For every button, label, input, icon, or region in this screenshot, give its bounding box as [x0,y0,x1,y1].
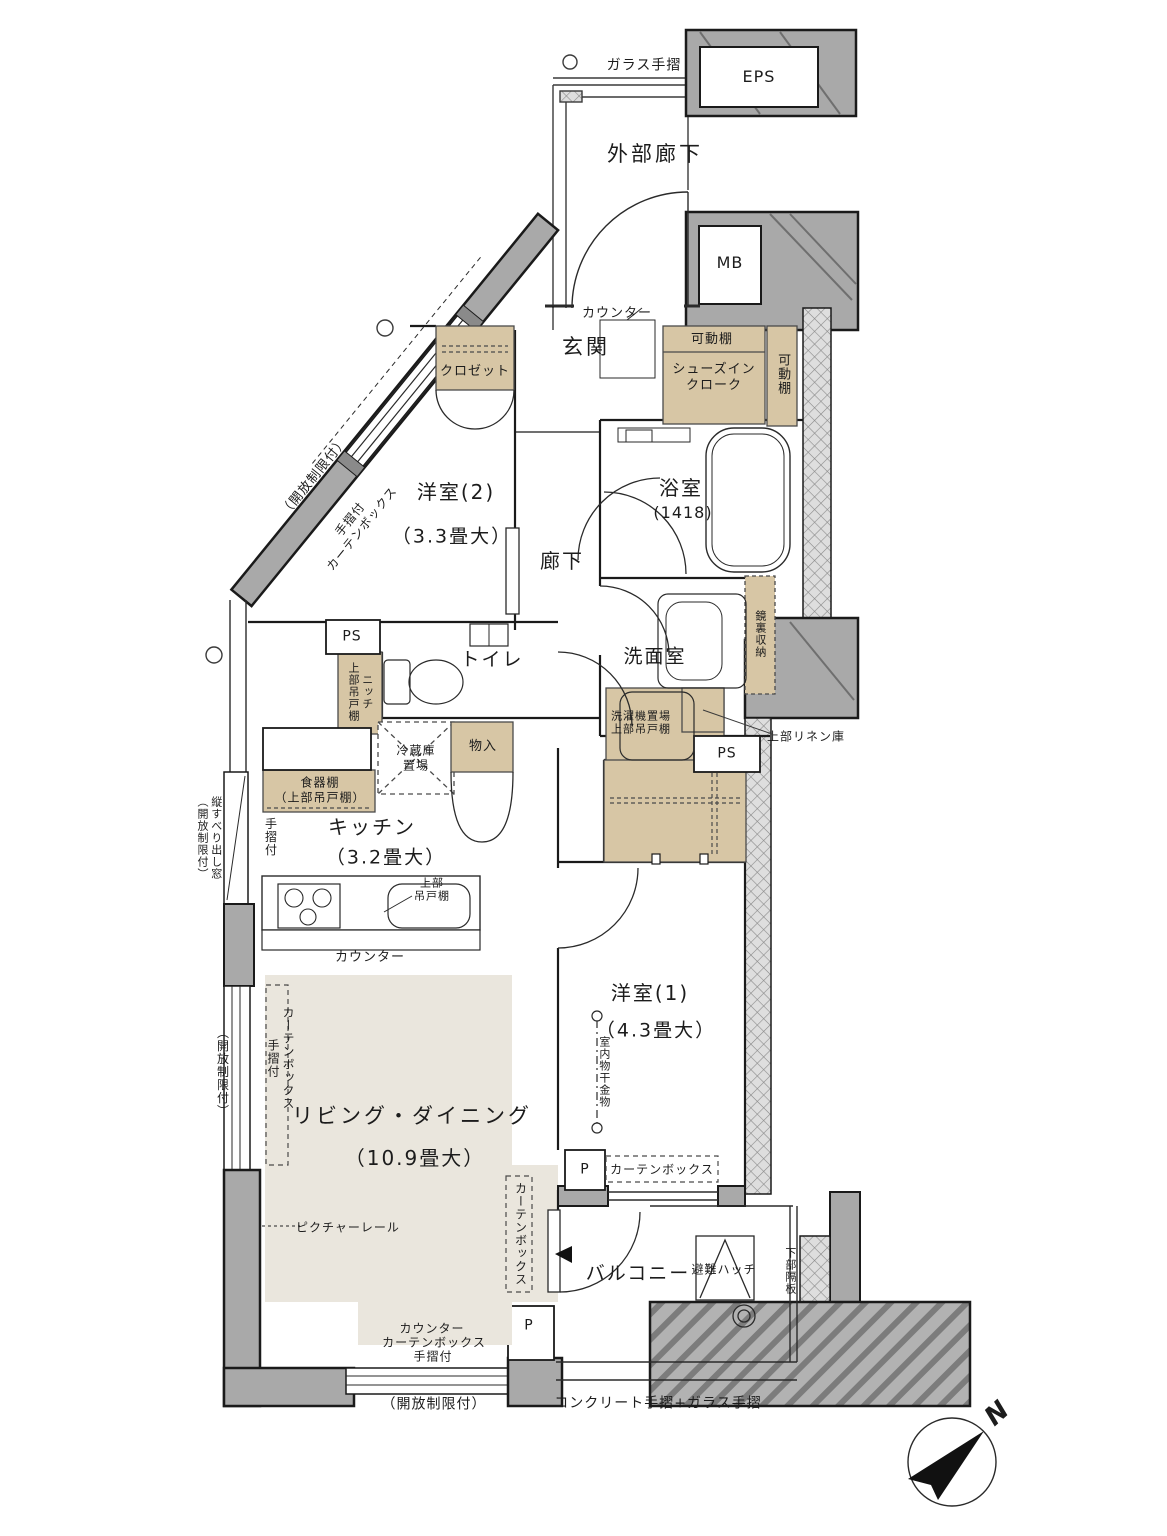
label-bathroom-size: (1418) [653,503,712,523]
label-open-limit-bottom: （開放制限付） [382,1396,487,1413]
label-handrail-bottom: 手摺付 [413,1350,452,1365]
label-closet-w2: クロゼット [440,364,510,380]
label-curtainbox-w1: カーテンボックス [610,1163,714,1178]
label-glass-rail: ガラス手摺 [607,57,682,74]
label-upper-cabinet-kitchen: 上部 吊戸棚 [414,877,450,904]
label-kitchen: キッチン [328,815,416,839]
label-washroom: 洗面室 [623,645,686,668]
label-western2: 洋室(2) [417,480,495,504]
label-exterior-corridor: 外部廊下 [607,142,703,168]
label-concrete-rail: コンクリート手摺+ガラス手摺 [554,1395,761,1412]
left-wall [224,600,260,1406]
label-storage: 物入 [469,739,497,755]
entrance-door [545,192,700,308]
label-curtainbox-balcony: カーテンボックス [513,1182,528,1286]
label-shoes-in-closet: シューズイン クローク [672,362,755,394]
exterior-corridor-lines [553,55,688,308]
label-curtainbox-handrail-left: カーテンボックス 手摺付 [265,1006,295,1110]
label-hallway: 廊下 [540,549,584,573]
label-western2-size: （3.3畳大） [392,525,512,548]
label-western1-size: （4.3畳大） [596,1019,716,1042]
label-mb: MB [717,253,744,273]
floor-plan-drawing [0,0,1167,1536]
label-counter-bottom: カウンター [399,1322,464,1337]
label-dish-cabinet: 食器棚 （上部吊戸棚） [274,775,365,804]
label-genkan-counter: カウンター [582,306,652,322]
label-balcony: バルコニー [586,1262,691,1285]
label-fridge-space: 冷蔵庫 置場 [396,743,435,772]
label-washer-upper-cabinet: 洗濯機置場 上部吊戸棚 [611,710,671,737]
label-living-dining-size: （10.9畳大） [345,1146,486,1170]
label-p-bottom: P [524,1317,533,1334]
floor-plan: ガラス手摺 EPS 外部廊下 MB カウンター 玄関 可動棚 シューズイン クロ… [0,0,1167,1536]
label-casement-window: 縦すべり出し窓 （開放制限付） [195,796,223,880]
label-living-dining: リビング・ダイニング [292,1104,532,1130]
label-ps-toilet: PS [342,628,361,645]
label-bathroom: 浴室 [659,476,703,500]
compass-icon [908,1418,996,1506]
label-kitchen-counter: カウンター [335,950,405,966]
label-ps-washroom: PS [717,745,736,762]
label-indoor-drying: 室内物干金物 [597,1036,611,1108]
label-open-limit-left: （開放制限付） [215,1027,230,1118]
label-western1: 洋室(1) [611,981,689,1005]
label-eps: EPS [743,67,776,87]
label-curtainbox-bottom: カーテンボックス [382,1336,486,1351]
label-lower-partition: 下部隔板 [783,1247,797,1295]
label-mirror-storage: 鏡裏収納 [753,610,767,658]
label-niche-upper-cabinet: ニッチ 上部吊戸棚 [346,662,374,722]
label-escape-hatch: 避難ハッチ [691,1263,756,1278]
label-genkan: 玄関 [562,335,610,361]
label-p-w1: P [580,1161,589,1178]
label-handrail-kitchen: 手摺付 [263,818,278,857]
label-movable-shelf-top: 可動棚 [691,332,733,348]
label-linen-upper: 上部リネン庫 [767,730,845,745]
section-marker-2 [206,647,222,663]
mb-wall-block [686,212,858,330]
label-movable-shelf-side: 可動棚 [774,353,790,395]
label-picture-rail: ピクチャーレール [296,1221,400,1236]
section-marker-1 [377,320,393,336]
label-toilet: トイレ [460,648,523,671]
label-kitchen-size: （3.2畳大） [326,846,446,869]
